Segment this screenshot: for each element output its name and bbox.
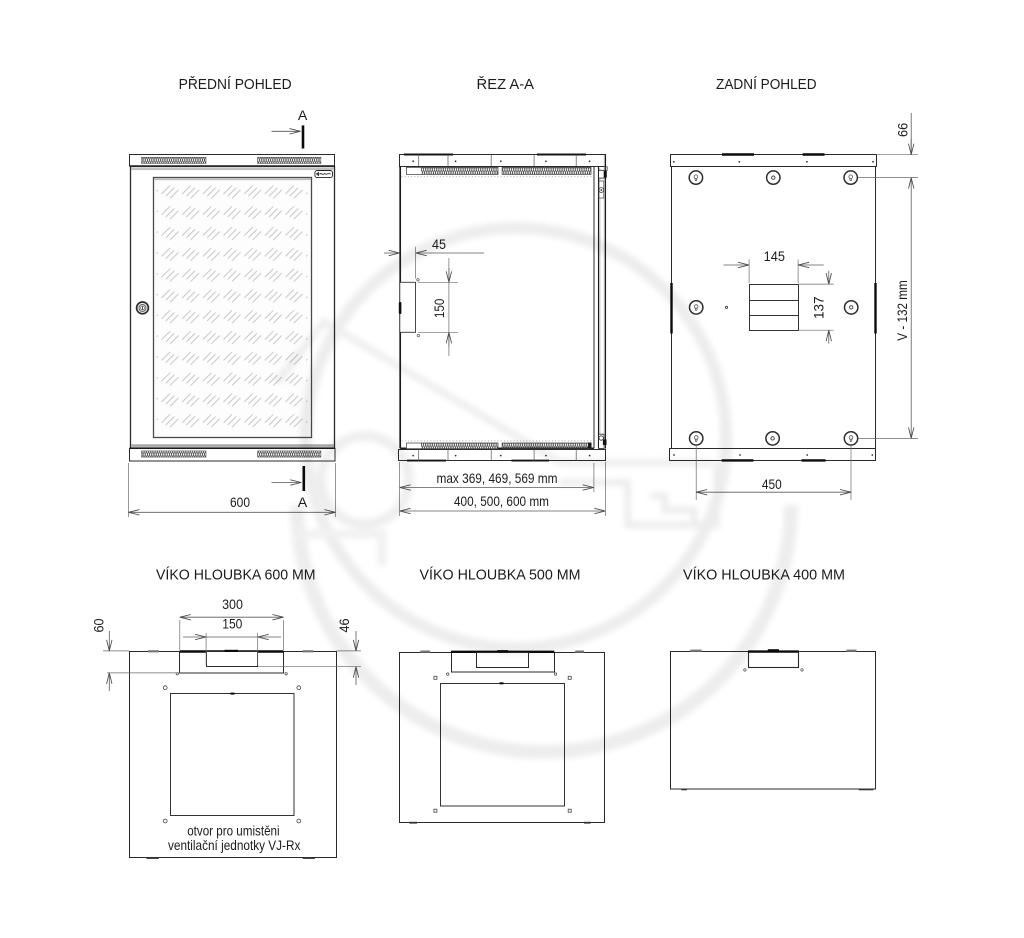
svg-text:150: 150	[431, 298, 447, 318]
svg-text:66: 66	[895, 123, 911, 137]
svg-text:600: 600	[230, 494, 250, 510]
svg-text:A: A	[298, 108, 308, 124]
svg-text:400, 500, 600 mm: 400, 500, 600 mm	[454, 493, 549, 509]
svg-text:137: 137	[810, 296, 826, 319]
svg-text:ZADNÍ POHLED: ZADNÍ POHLED	[716, 76, 817, 93]
svg-text:PŘEDNÍ POHLED: PŘEDNÍ POHLED	[179, 76, 292, 93]
svg-text:300: 300	[222, 596, 243, 612]
svg-text:ventilační jednotky VJ-Rx: ventilační jednotky VJ-Rx	[168, 837, 300, 853]
svg-text:max 369, 469, 569 mm: max 369, 469, 569 mm	[437, 470, 558, 486]
svg-text:ŘEZ A-A: ŘEZ A-A	[477, 76, 535, 93]
svg-text:VÍKO HLOUBKA 500 MM: VÍKO HLOUBKA 500 MM	[420, 567, 581, 584]
svg-text:VÍKO HLOUBKA 600 MM: VÍKO HLOUBKA 600 MM	[156, 567, 316, 584]
svg-text:VÍKO HLOUBKA 400 MM: VÍKO HLOUBKA 400 MM	[683, 567, 845, 584]
svg-text:V - 132 mm: V - 132 mm	[894, 280, 910, 340]
svg-text:145: 145	[764, 248, 785, 264]
svg-text:60: 60	[91, 618, 107, 632]
svg-text:450: 450	[762, 476, 782, 492]
svg-text:150: 150	[222, 616, 242, 632]
